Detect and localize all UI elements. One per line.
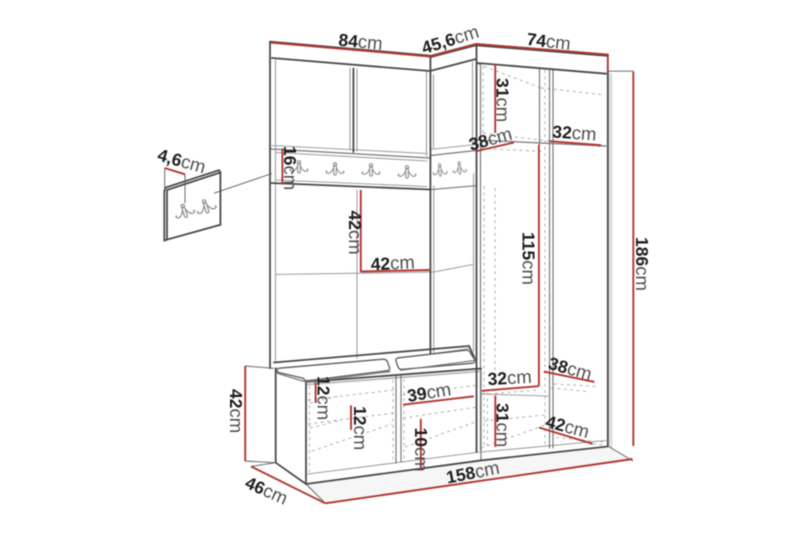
svg-text:32cm: 32cm — [487, 366, 532, 389]
svg-text:31cm: 31cm — [493, 78, 514, 122]
svg-text:10cm: 10cm — [411, 428, 432, 472]
svg-text:42cm: 42cm — [345, 211, 366, 255]
svg-text:31cm: 31cm — [493, 403, 514, 447]
svg-text:12cm: 12cm — [314, 376, 335, 420]
svg-text:32cm: 32cm — [552, 121, 597, 145]
svg-text:42cm: 42cm — [226, 389, 247, 433]
svg-text:16cm: 16cm — [280, 146, 301, 190]
svg-text:42cm: 42cm — [370, 251, 415, 274]
svg-text:84cm: 84cm — [338, 29, 384, 54]
svg-text:12cm: 12cm — [350, 406, 371, 450]
svg-text:115cm: 115cm — [519, 232, 540, 285]
svg-text:186cm: 186cm — [632, 237, 653, 291]
